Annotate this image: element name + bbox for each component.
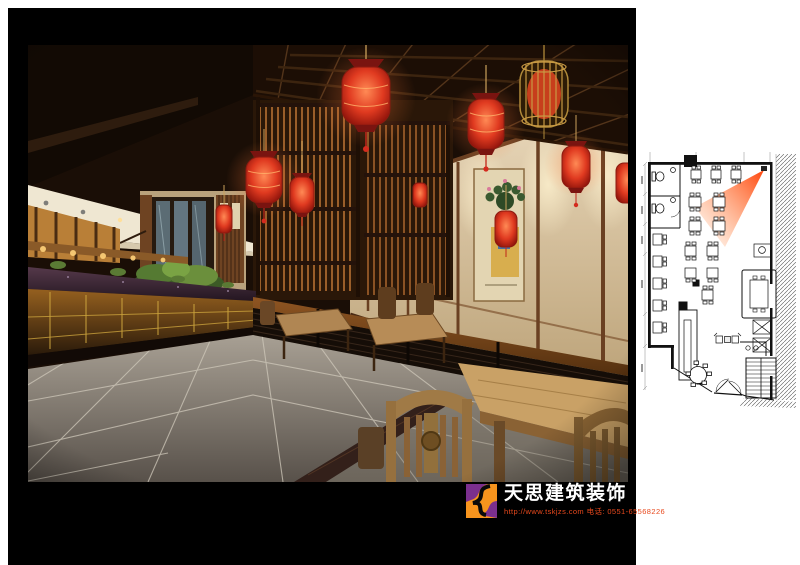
- presentation-board: 天思建筑装饰 http://www.tskjzs.com 电话: 0551-65…: [0, 0, 800, 565]
- vignette: [28, 45, 628, 482]
- company-logo-block: 天思建筑装饰 http://www.tskjzs.com 电话: 0551-65…: [466, 484, 665, 518]
- company-logo-mark: [466, 484, 497, 518]
- company-name: 天思建筑装饰: [504, 484, 665, 504]
- company-contact: http://www.tskjzs.com 电话: 0551-65568226: [504, 506, 665, 517]
- floor-plan: [640, 150, 798, 408]
- interior-rendering: [28, 45, 628, 482]
- photo-frame: 天思建筑装饰 http://www.tskjzs.com 电话: 0551-65…: [8, 8, 636, 565]
